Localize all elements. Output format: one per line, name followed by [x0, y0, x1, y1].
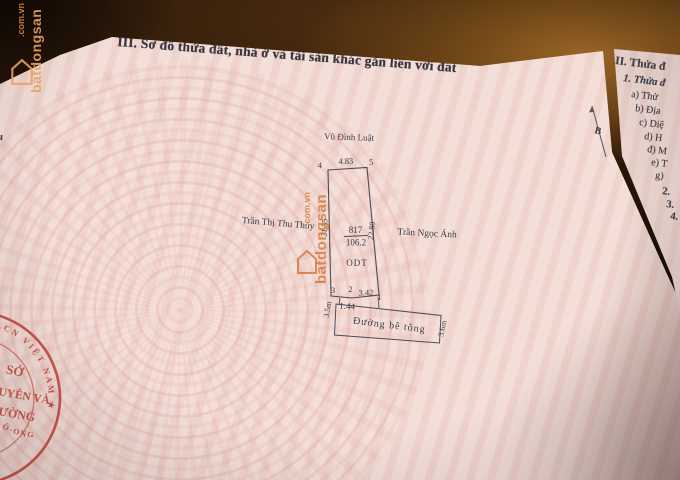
house-icon: [296, 249, 318, 275]
land-use-code: ODT: [346, 258, 368, 268]
parcel-diagram: 4 5 3 2 1 4.83 21.55 22.80 3.42 1.44 817…: [241, 131, 457, 343]
neighbor-right: Trần Ngọc Ánh: [397, 225, 457, 240]
neighbor-top: Vũ Đình Luật: [324, 131, 375, 143]
neighbor-left: Trần Thị Thu Thủy: [241, 215, 315, 232]
north-mark-letter: B: [593, 125, 602, 137]
road-label: Đường bê tông: [352, 316, 426, 336]
length-left: 21.55: [320, 219, 330, 237]
north-arrow-head: [589, 106, 595, 113]
stamp-line2: UYÊN VÀ: [0, 384, 52, 407]
corner-4: 4: [318, 160, 323, 170]
length-bottom-left: 1.44: [339, 300, 356, 311]
stamp-arc-bottom-text: Ô-ONG: [1, 421, 35, 439]
corner-2: 2: [348, 284, 352, 294]
corner-3: 3: [331, 285, 335, 295]
road-width-left: 3.5m: [322, 300, 334, 318]
red-stamp: H.CN VIỆT NAM ★ SỞ UYÊN VÀ ƯỜNG Ô-ONG: [0, 312, 60, 480]
length-right: 22.80: [366, 221, 377, 240]
corner-1: 1: [377, 292, 381, 302]
length-bottom-right: 3.42: [358, 287, 373, 298]
parcel-number: 817: [349, 225, 363, 235]
stamp-line1: SỞ: [5, 361, 26, 379]
stamp-line3: ƯỜNG: [0, 404, 36, 424]
svg-text:Ô-ONG: Ô-ONG: [1, 421, 35, 439]
fraction-bar: [344, 236, 368, 237]
house-icon: [10, 58, 34, 86]
diagram-overlay: 4 5 3 2 1 4.83 21.55 22.80 3.42 1.44 817…: [0, 0, 680, 480]
north-mark: B: [589, 106, 606, 157]
photo-land-certificate: III. Sơ đồ thửa đất, nhà ở và tài sản kh…: [0, 0, 680, 480]
length-top: 4.83: [338, 156, 353, 167]
road-width-right: 3.6m: [436, 319, 448, 337]
corner-5: 5: [369, 157, 373, 167]
parcel-area: 106.2: [346, 238, 366, 248]
